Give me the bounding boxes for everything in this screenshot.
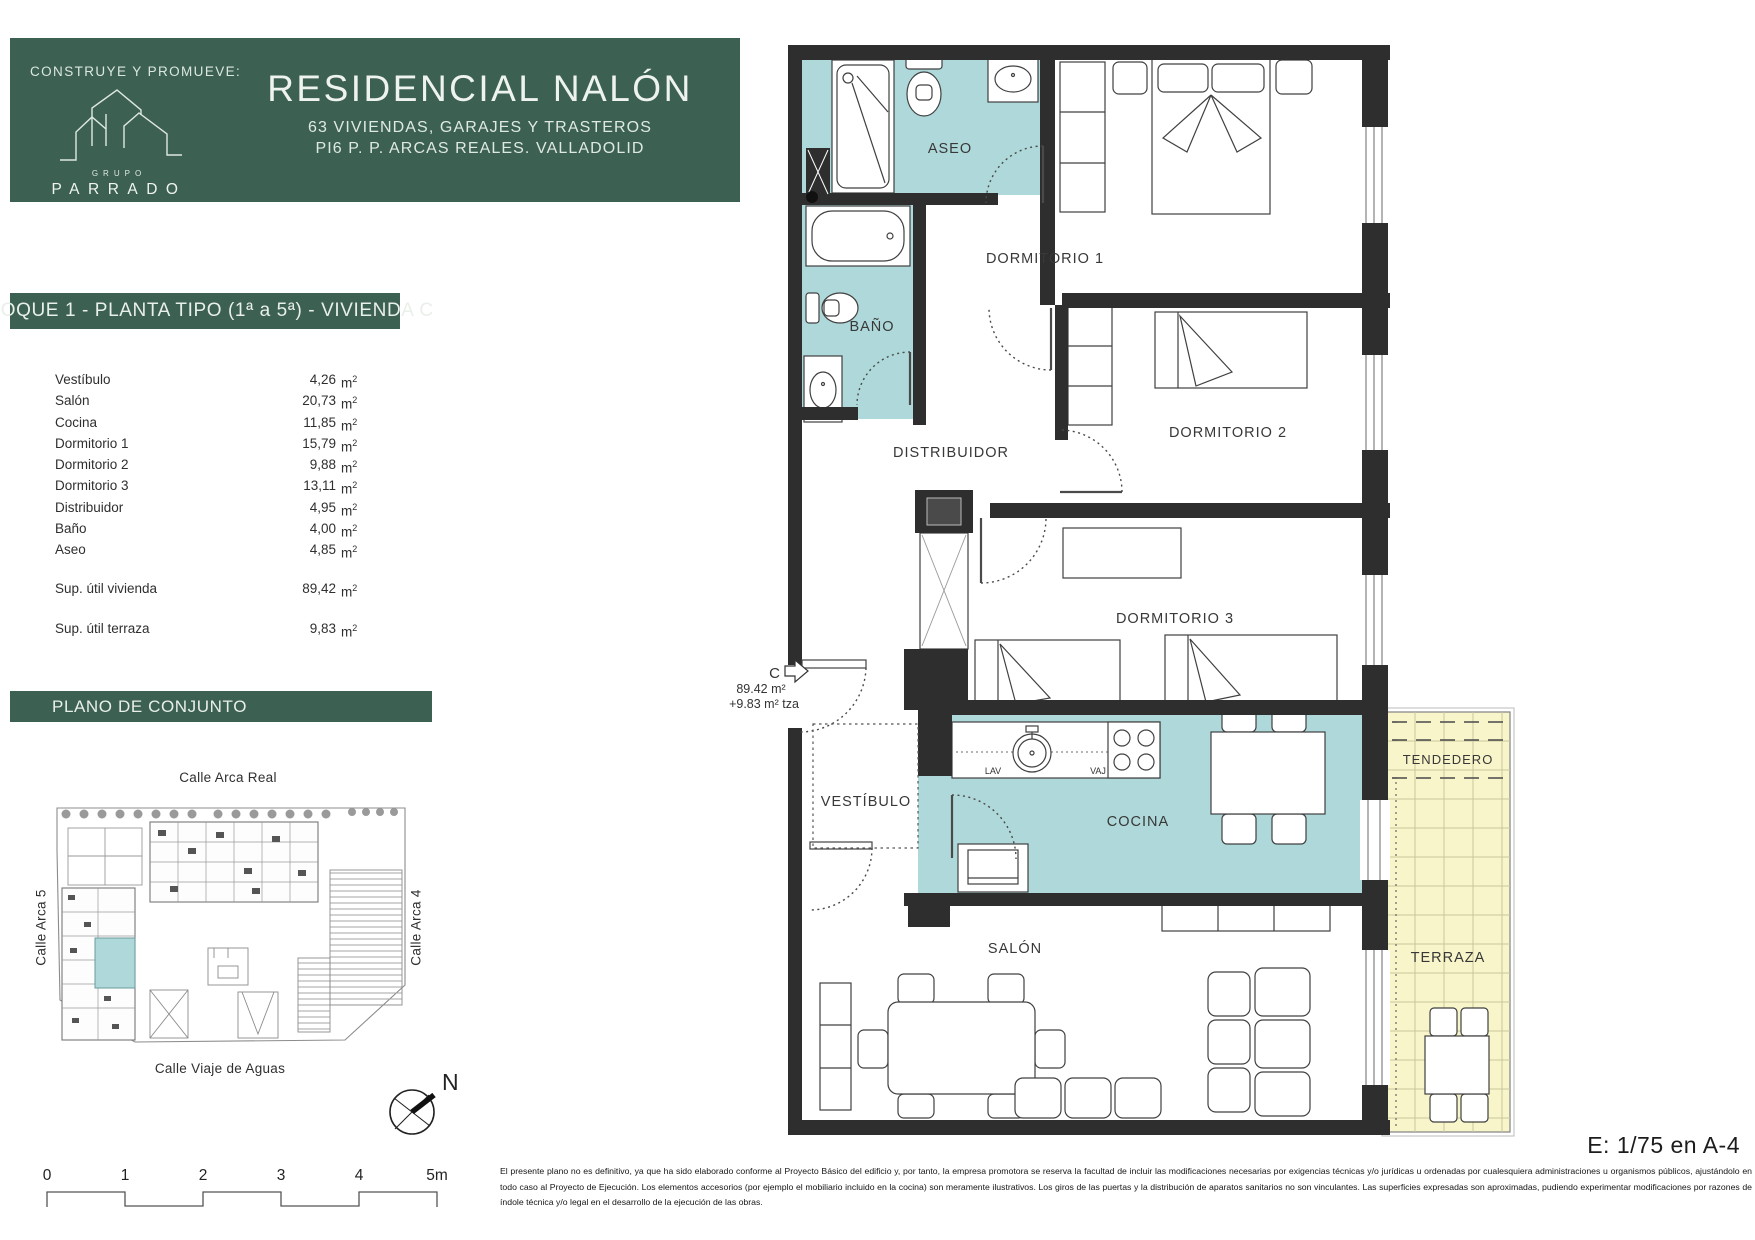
- grupo-parrado-logo: GRUPO PARRADO: [38, 84, 198, 200]
- row-label: Aseo: [55, 541, 284, 562]
- row-unit: m2: [341, 541, 363, 562]
- row-unit: m2: [341, 435, 363, 456]
- row-unit: m2: [341, 580, 363, 601]
- desk: [1063, 528, 1181, 578]
- shower-icon: [832, 60, 894, 193]
- row-value: 20,73: [284, 392, 336, 413]
- disclaimer: El presente plano no es definitivo, ya q…: [500, 1164, 1752, 1211]
- bookshelf: [820, 983, 851, 1110]
- table-row: Salón20,73m2: [55, 392, 363, 413]
- unit-letter: C: [769, 665, 780, 682]
- terrace-annex: [1382, 708, 1514, 1136]
- unit-area: 89.42 m²: [736, 682, 785, 696]
- site-plan-map: [55, 800, 410, 1050]
- row-label: Sup. útil terraza: [55, 620, 284, 641]
- scale-tick: 3: [277, 1167, 286, 1184]
- disclaimer-line: todo caso al Proyecto de Ejecución. Los …: [500, 1180, 1752, 1196]
- table-row: Dormitorio 115,79m2: [55, 435, 363, 456]
- label-vaj: VAJ: [1090, 766, 1106, 776]
- scale-bar-line: [47, 1192, 437, 1207]
- table-row: Vestíbulo4,26m2: [55, 371, 363, 392]
- row-unit: m2: [341, 620, 363, 641]
- street-label-top: Calle Arca Real: [128, 770, 328, 785]
- window-salon: [1360, 950, 1390, 1085]
- drain-icon: [806, 191, 818, 203]
- logo-parrado-text: PARRADO: [51, 181, 186, 198]
- stove-icon: [1108, 722, 1160, 778]
- north-arrow-icon: N: [380, 1060, 458, 1142]
- label-tendedero: TENDEDERO: [1403, 752, 1494, 767]
- surface-table: Vestíbulo4,26m2 Salón20,73m2 Cocina11,85…: [55, 371, 363, 641]
- double-bed-icon: [1152, 58, 1270, 214]
- closet-icon: [920, 533, 968, 649]
- scale-tick: 2: [199, 1167, 208, 1184]
- row-label: Dormitorio 3: [55, 477, 284, 498]
- row-unit: m2: [341, 371, 363, 392]
- single-bed-icon: [1155, 312, 1307, 388]
- vestibulo-boundary: [813, 724, 918, 848]
- table-row: Baño4,00m2: [55, 520, 363, 541]
- scale-tick: 4: [355, 1167, 364, 1184]
- label-dorm1: DORMITORIO 1: [986, 251, 1104, 267]
- row-label: Dormitorio 2: [55, 456, 284, 477]
- site-building-b: [62, 888, 135, 1040]
- label-bano: BAÑO: [849, 318, 894, 335]
- row-label: Baño: [55, 520, 284, 541]
- scale-tick: 0: [43, 1167, 52, 1184]
- site-plan-banner: PLANO DE CONJUNTO: [10, 691, 432, 722]
- page-title: RESIDENCIAL NALÓN: [245, 68, 715, 110]
- street-label-right: Calle Arca 4: [409, 863, 424, 993]
- disclaimer-line: índole técnica y/o legal en el desarroll…: [500, 1195, 1752, 1211]
- single-bed-icon: [1165, 635, 1337, 705]
- label-cocina: COCINA: [1107, 814, 1169, 830]
- site-court: [68, 828, 142, 885]
- wardrobe-icon: [1068, 307, 1112, 425]
- street-label-left: Calle Arca 5: [34, 863, 49, 993]
- window-dorm3: [1360, 575, 1390, 665]
- header-subtitle-1: 63 VIVIENDAS, GARAJES Y TRASTEROS: [245, 119, 715, 137]
- row-value: 15,79: [284, 435, 336, 456]
- row-value: 4,95: [284, 499, 336, 520]
- terrace-door: [1360, 800, 1390, 880]
- row-value: 4,85: [284, 541, 336, 562]
- unit-banner: BLOQUE 1 - PLANTA TIPO (1ª a 5ª) - VIVIE…: [10, 293, 400, 329]
- window-dorm1: [1360, 127, 1390, 223]
- row-unit: m2: [341, 414, 363, 435]
- table-row: Dormitorio 29,88m2: [55, 456, 363, 477]
- label-dorm3: DORMITORIO 3: [1116, 611, 1234, 627]
- row-value: 11,85: [284, 414, 336, 435]
- row-label: Distribuidor: [55, 499, 284, 520]
- site-highlighted-unit: [95, 938, 135, 988]
- row-value: 9,88: [284, 456, 336, 477]
- table-row: Aseo4,85m2: [55, 541, 363, 562]
- unit-tag: C 89.42 m² +9.83 m² tza: [729, 660, 808, 711]
- row-label: Sup. útil vivienda: [55, 580, 284, 601]
- door-dorm1: [989, 308, 1051, 370]
- door-dorm2: [1060, 430, 1122, 492]
- table-row: Distribuidor4,95m2: [55, 499, 363, 520]
- bathtub-icon: [806, 206, 910, 266]
- table-total-terraza: Sup. útil terraza9,83m2: [55, 620, 363, 641]
- label-salon: SALÓN: [988, 940, 1042, 957]
- row-value: 89,42: [284, 580, 336, 601]
- row-label: Dormitorio 1: [55, 435, 284, 456]
- label-aseo: ASEO: [928, 141, 972, 157]
- row-value: 4,00: [284, 520, 336, 541]
- table-row: Dormitorio 313,11m2: [55, 477, 363, 498]
- entry-door: [800, 660, 866, 732]
- single-bed-icon: [975, 640, 1120, 706]
- table-total-vivienda: Sup. útil vivienda89,42m2: [55, 580, 363, 601]
- disclaimer-line: El presente plano no es definitivo, ya q…: [500, 1164, 1752, 1180]
- row-value: 4,26: [284, 371, 336, 392]
- logo-houses-icon: [60, 90, 182, 160]
- washbasin-icon: [988, 56, 1038, 102]
- nightstand: [1276, 60, 1312, 94]
- promoter-label: CONSTRUYE Y PROMUEVE:: [30, 64, 241, 79]
- row-value: 13,11: [284, 477, 336, 498]
- header-titles: RESIDENCIAL NALÓN 63 VIVIENDAS, GARAJES …: [245, 68, 715, 158]
- row-unit: m2: [341, 520, 363, 541]
- table-row: Cocina11,85m2: [55, 414, 363, 435]
- label-dorm2: DORMITORIO 2: [1169, 425, 1287, 441]
- wardrobe-icon: [1060, 62, 1105, 212]
- scale-tick: 1: [121, 1167, 130, 1184]
- oven-icon: [958, 844, 1028, 892]
- row-unit: m2: [341, 499, 363, 520]
- scale-tick: 5m: [426, 1167, 448, 1184]
- row-unit: m2: [341, 456, 363, 477]
- header-panel: CONSTRUYE Y PROMUEVE: GRUPO PARRADO RESI…: [10, 38, 740, 202]
- label-terraza: TERRAZA: [1411, 950, 1486, 966]
- north-label: N: [442, 1069, 458, 1095]
- nightstand: [1113, 62, 1147, 94]
- label-lav: LAV: [985, 766, 1001, 776]
- row-label: Cocina: [55, 414, 284, 435]
- floor-plan: ASEO BAÑO DORMITORIO 1 DORMITORIO 2 DIST…: [690, 30, 1535, 1155]
- scale-bar: 0 1 2 3 4 5m: [38, 1155, 462, 1213]
- header-subtitle-2: PI6 P. P. ARCAS REALES. VALLADOLID: [245, 140, 715, 158]
- unit-terrace-area: +9.83 m² tza: [729, 697, 799, 711]
- label-distribuidor: DISTRIBUIDOR: [893, 445, 1009, 461]
- sideboard: [1162, 905, 1330, 931]
- window-dorm2: [1360, 355, 1390, 450]
- row-unit: m2: [341, 392, 363, 413]
- row-unit: m2: [341, 477, 363, 498]
- door-dorm3: [981, 518, 1046, 583]
- scale-note: E: 1/75 en A-4: [1545, 1132, 1740, 1159]
- site-misc-structures: [150, 948, 278, 1038]
- door-vestibulo-salon: [810, 842, 872, 910]
- site-building-a: [150, 822, 318, 902]
- row-label: Salón: [55, 392, 284, 413]
- brochure-page: CONSTRUYE Y PROMUEVE: GRUPO PARRADO RESI…: [0, 0, 1755, 1240]
- label-vestibulo: VESTÍBULO: [821, 793, 911, 810]
- site-trees: [62, 808, 399, 819]
- street-label-bottom: Calle Viaje de Aguas: [120, 1061, 320, 1076]
- fixtures: [804, 56, 1337, 1118]
- toilet-icon: [906, 56, 942, 116]
- logo-grupo-text: GRUPO: [92, 169, 146, 178]
- row-label: Vestíbulo: [55, 371, 284, 392]
- terrace-table-chairs: [1425, 1008, 1489, 1122]
- row-value: 9,83: [284, 620, 336, 641]
